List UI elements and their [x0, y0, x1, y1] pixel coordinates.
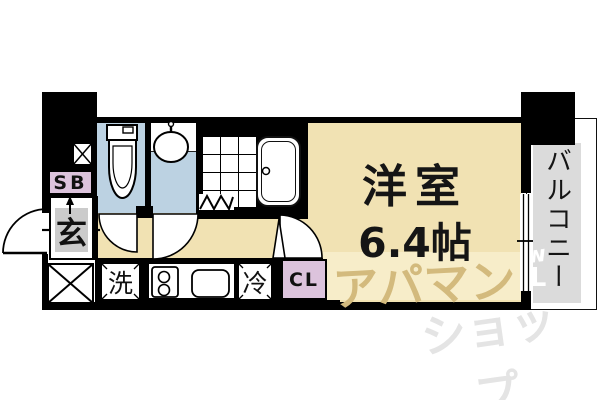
- toilet-icon: [107, 125, 137, 198]
- bathtub-drain: [263, 168, 270, 175]
- burner-circle: [159, 285, 170, 296]
- entrance-door-swing: [3, 209, 47, 253]
- washer-corner-ticks: [100, 262, 141, 301]
- direction-arrow-icon: [66, 196, 74, 214]
- burner-circle: [159, 272, 170, 283]
- stove-icon: [152, 267, 178, 297]
- room-door-swing: [280, 215, 322, 258]
- sliding-window: [517, 194, 533, 291]
- pipe-space-cross: [73, 143, 92, 165]
- toilet-door-swing: [99, 214, 137, 252]
- kitchen-sink-icon: [192, 270, 229, 297]
- symbol-overlay: [0, 0, 600, 400]
- floorplan-canvas: ショップ アパマン SB 玄 洗 冷 CL 洋室 6.4帖 バルコニー w L: [0, 0, 600, 400]
- washroom-door-swing: [153, 214, 198, 259]
- bath-folding-door: [199, 194, 234, 210]
- washbasin-icon: [154, 122, 188, 163]
- fridge-corner-ticks: [237, 262, 273, 301]
- shaft-cross: [48, 264, 93, 303]
